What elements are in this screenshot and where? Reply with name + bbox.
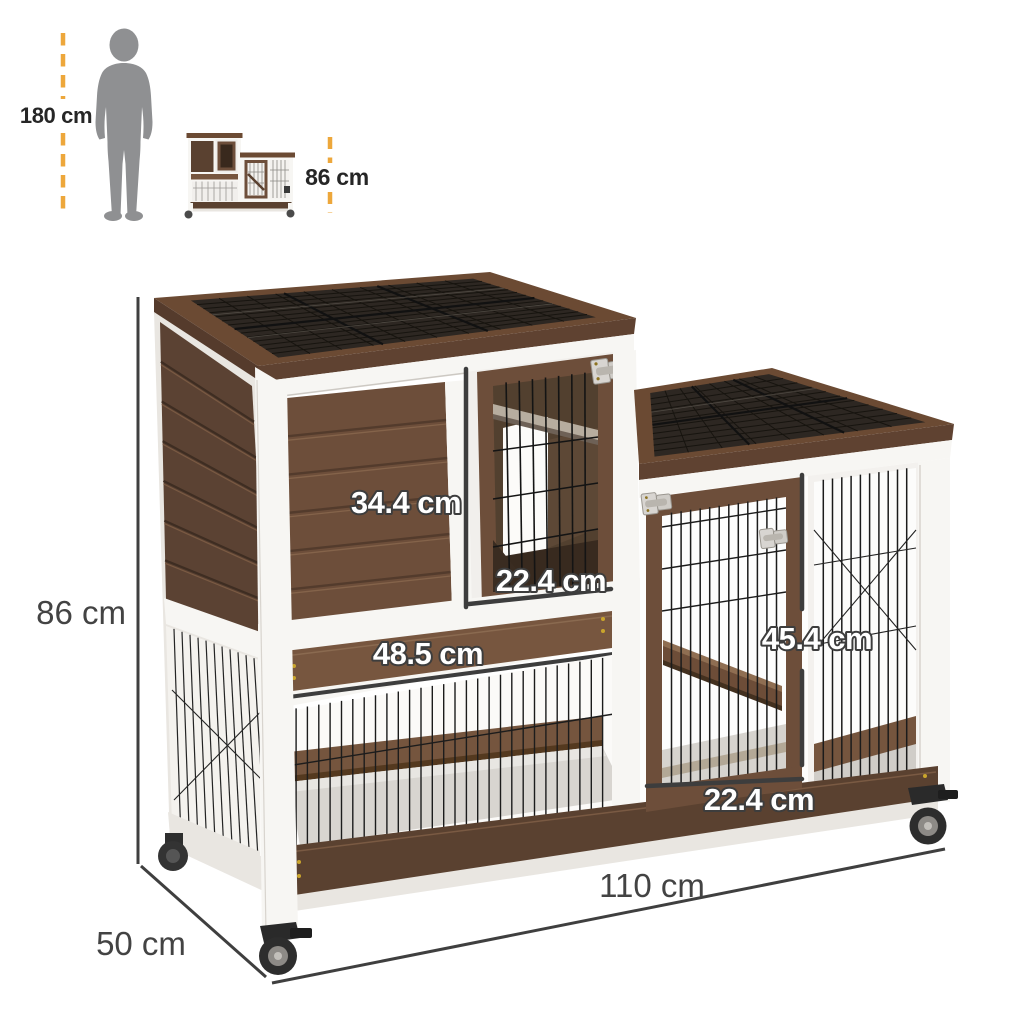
svg-text:45.4 cm: 45.4 cm [762,621,872,656]
svg-text:110 cm: 110 cm [599,867,705,904]
svg-text:22.4 cm: 22.4 cm [496,563,606,598]
svg-text:86 cm: 86 cm [305,164,369,190]
svg-text:22.4 cm: 22.4 cm [704,782,814,817]
svg-text:180 cm: 180 cm [20,103,92,128]
svg-text:48.5 cm: 48.5 cm [373,636,483,671]
svg-text:34.4 cm: 34.4 cm [351,485,461,520]
svg-text:50 cm: 50 cm [96,925,186,962]
svg-text:86 cm: 86 cm [36,594,126,631]
